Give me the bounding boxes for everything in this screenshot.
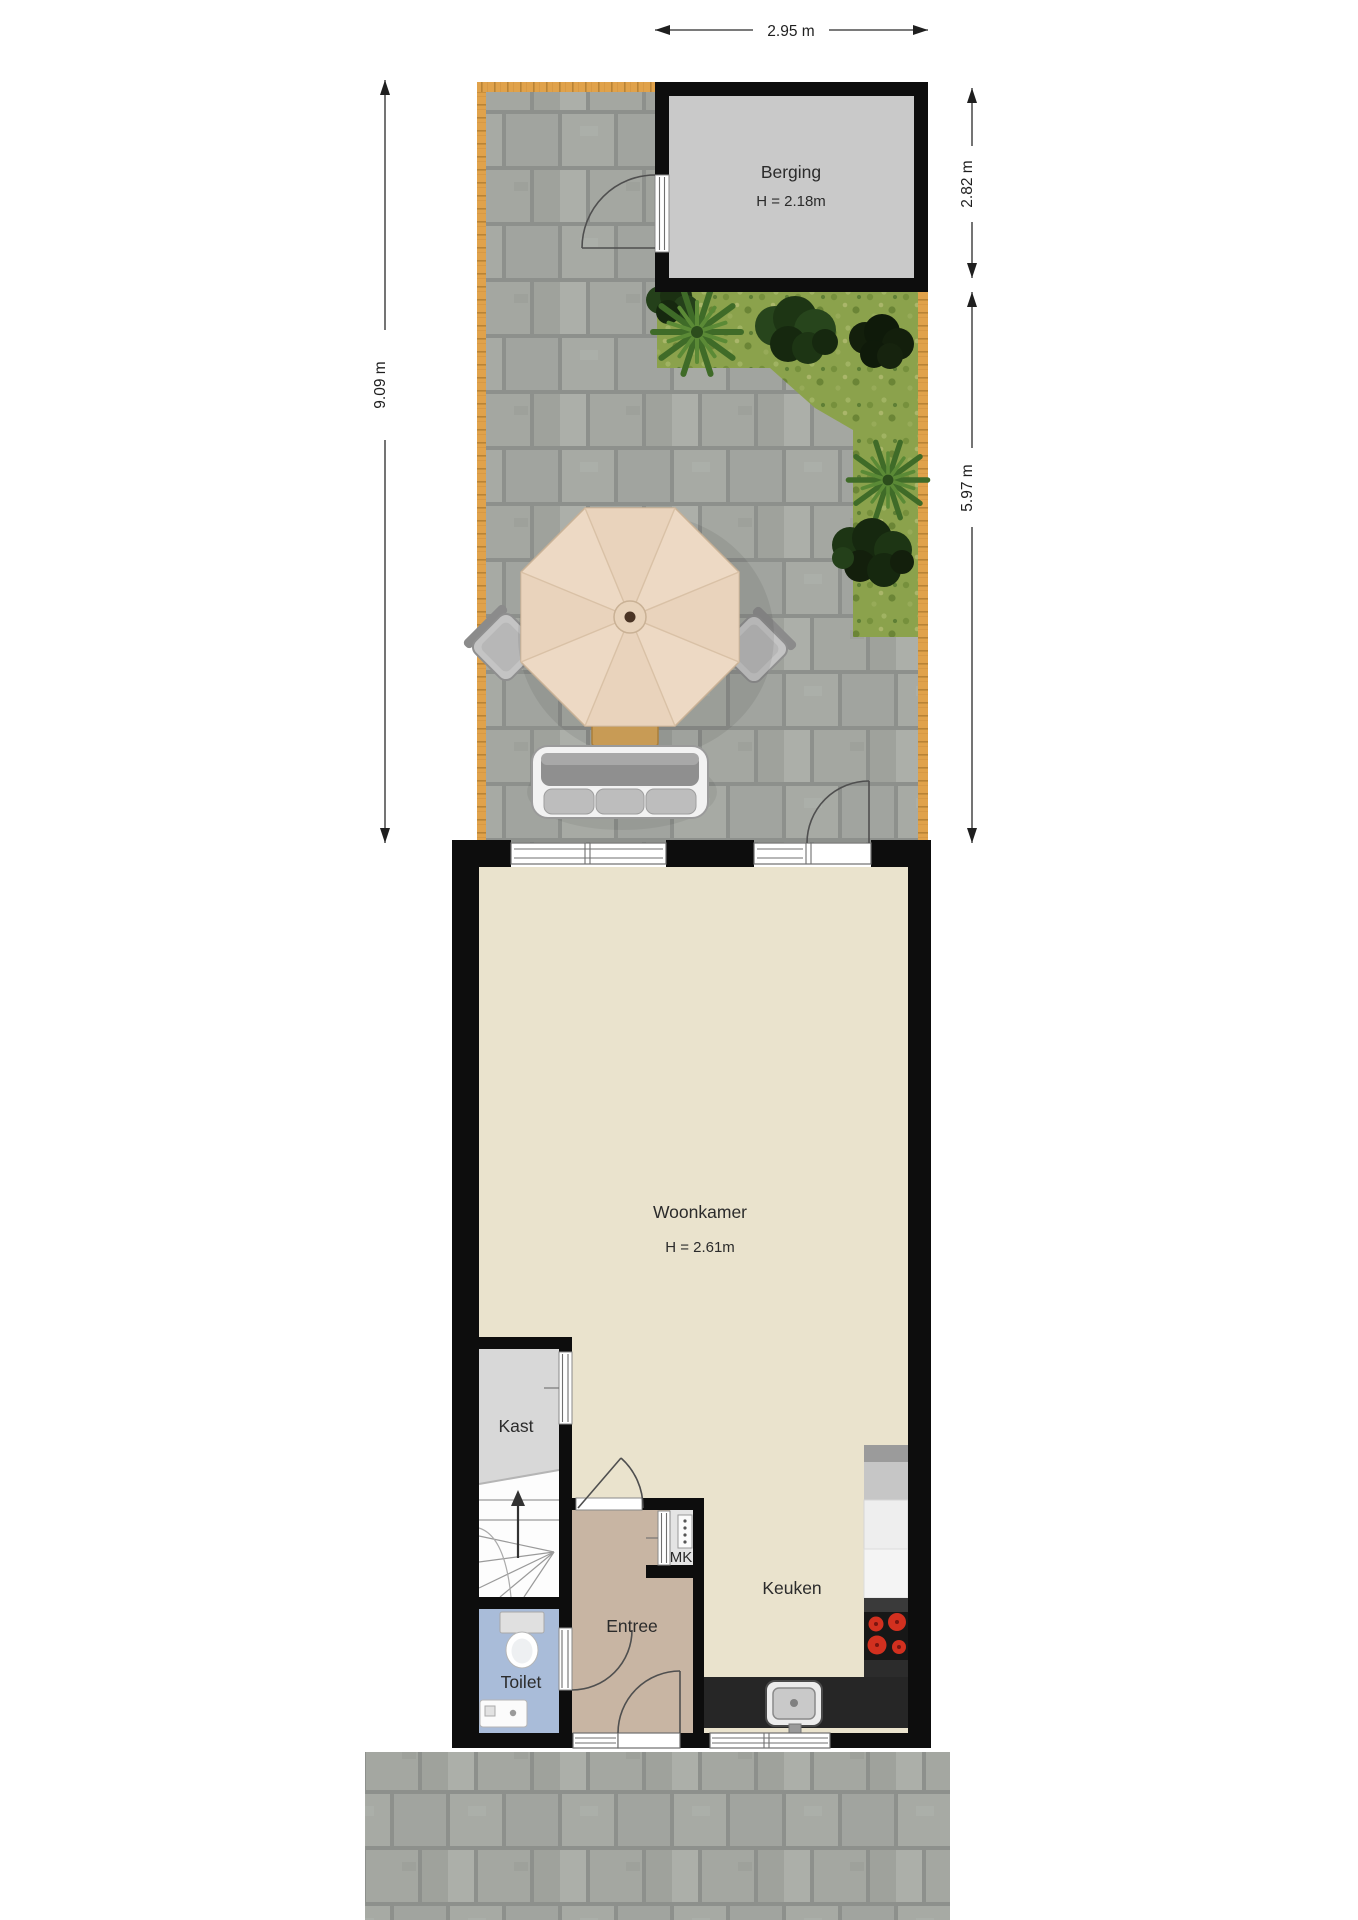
fence-left: [477, 82, 486, 843]
sidewalk-paving: [365, 1752, 950, 1920]
garden-bench: [527, 746, 717, 830]
dimension-garden-depth: 5.97 m: [959, 292, 977, 843]
cooktop-burners: [864, 1612, 908, 1660]
toilet-label: Toilet: [501, 1672, 542, 1692]
house-ground-floor: Woonkamer H = 2.61m Kast Toilet Entree M…: [452, 781, 931, 1748]
garden: Berging H = 2.18m: [462, 82, 928, 843]
berging-door: [655, 175, 669, 252]
dimension-top-width: 2.95 m: [655, 23, 928, 40]
dimension-left-depth-label: 9.09 m: [372, 361, 389, 408]
fridge: [864, 1500, 908, 1549]
woonkamer-ceiling-height: H = 2.61m: [665, 1239, 735, 1256]
berging-floor: [669, 96, 914, 278]
keuken-label: Keuken: [762, 1578, 821, 1598]
kast-label: Kast: [498, 1416, 533, 1436]
parasol-pole: [625, 612, 636, 623]
fence-top: [477, 82, 657, 92]
berging-label: Berging: [761, 162, 821, 182]
mk-label: MK: [670, 1549, 693, 1566]
dimension-berging-depth-label: 2.82 m: [959, 160, 976, 207]
living-window: [511, 843, 666, 864]
dimension-top-width-label: 2.95 m: [767, 23, 814, 40]
kast-top-wall: [452, 1337, 572, 1349]
kitchen-counter: [864, 1462, 908, 1500]
toilet-top-wall: [452, 1597, 572, 1609]
entree-keuken-wall: [693, 1498, 704, 1733]
tall-cabinet: [864, 1549, 908, 1598]
woonkamer-label: Woonkamer: [653, 1202, 747, 1222]
dimension-berging-depth: 2.82 m: [959, 88, 977, 278]
dimension-left-depth: 9.09 m: [372, 80, 390, 843]
dimension-garden-depth-label: 5.97 m: [959, 464, 976, 511]
hand-basin: [480, 1700, 527, 1727]
berging-ceiling-height: H = 2.18m: [756, 193, 826, 210]
floorplan-page: Berging H = 2.18m: [0, 0, 1358, 1920]
kitchen-window: [710, 1733, 830, 1748]
entree-label: Entree: [606, 1616, 658, 1636]
floorplan-canvas: Berging H = 2.18m: [0, 0, 1358, 1920]
meter-box: [678, 1515, 692, 1548]
kitchen-counter-top: [864, 1445, 908, 1462]
front-door-sidelight: [573, 1733, 618, 1748]
